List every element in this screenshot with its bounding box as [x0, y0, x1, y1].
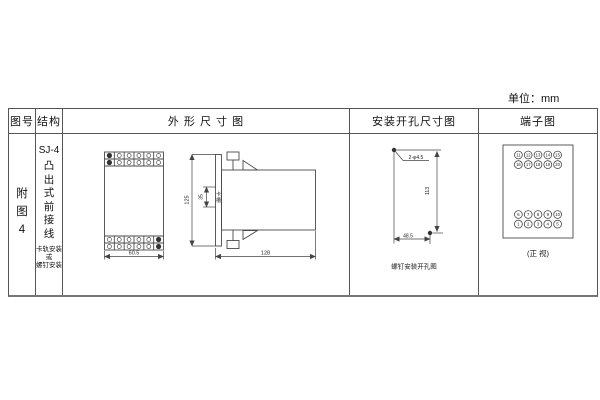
figure-number-char: 附	[16, 188, 28, 200]
mounting-note: 卡轨安装 或 螺钉安装	[36, 246, 62, 270]
cell-structure: SJ-4 凸 出 式 前 接 线 卡轨安装 或 螺钉安装	[36, 134, 63, 295]
structure-type-char: 前	[44, 201, 55, 215]
header-structure: 结构	[36, 109, 63, 134]
cell-terminal-diagram	[479, 134, 597, 295]
datasheet-page: 单位：mm 图号 结构 外 形 尺 寸 图 安装开孔尺寸图 端子图 附 图 4 …	[0, 0, 600, 400]
unit-label: 单位：mm	[508, 90, 559, 106]
structure-type-char: 线	[44, 228, 55, 242]
structure-type-char: 接	[44, 214, 55, 228]
cell-outline-dimensions	[63, 134, 350, 295]
structure-type-char: 凸	[44, 160, 55, 174]
cell-figure-number: 附 图 4	[9, 134, 36, 295]
structure-type-char: 式	[44, 187, 55, 201]
header-mounting-holes: 安装开孔尺寸图	[350, 109, 479, 134]
header-outline-dimensions: 外 形 尺 寸 图	[63, 109, 350, 134]
relay-model: SJ-4	[39, 145, 60, 157]
figure-number-char: 4	[19, 224, 25, 236]
cell-mounting-holes	[350, 134, 479, 295]
dimension-table: 图号 结构 外 形 尺 寸 图 安装开孔尺寸图 端子图 附 图 4 SJ-4 凸…	[8, 108, 598, 297]
header-terminal-diagram: 端子图	[479, 109, 597, 134]
structure-type-char: 出	[44, 174, 55, 188]
header-figure-number: 图号	[9, 109, 36, 134]
figure-number-char: 图	[16, 206, 28, 218]
